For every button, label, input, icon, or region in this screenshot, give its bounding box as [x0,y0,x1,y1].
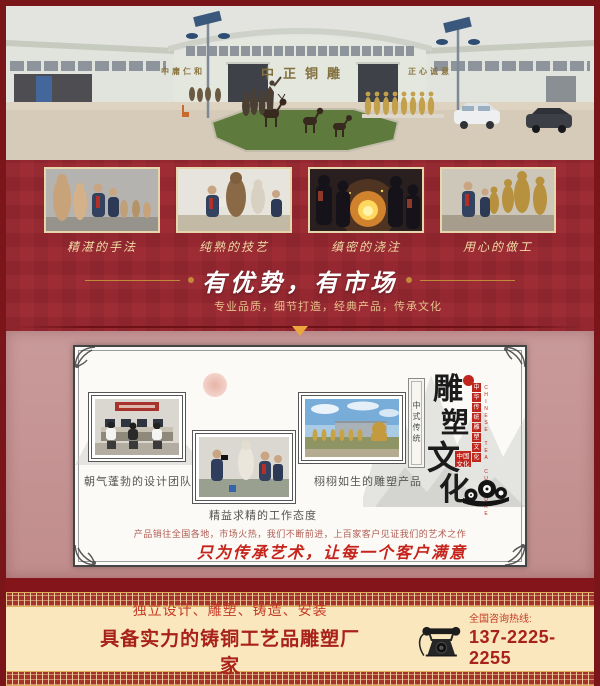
advantage-section: 精湛的手法 纯熟的技艺 [6,160,594,331]
culture-title-char: 雕 [433,375,463,405]
team-photo-frame [91,395,183,459]
culture-tablet: 中式传统 [408,378,425,468]
design-team-photo [95,399,179,455]
seal-block: 塑 [472,433,481,442]
photo-caption-attitude: 精益求精的工作态度 [203,507,323,523]
culture-card: 朝气蓬勃的设计团队 精益求精的工作态度 [73,345,527,567]
process-photo-caption: 精湛的手法 [44,238,160,255]
ink-sun [203,373,227,397]
heading-deco-dot-left [188,277,194,283]
sculpture-products-photo [305,399,399,457]
process-photo-caption: 用心的做工 [440,238,556,255]
work-attitude-photo [199,437,289,497]
hotline-label: 全国咨询热线: [469,610,594,625]
heading-deco-line-right [420,280,515,281]
process-photo-caption: 缜密的浇注 [308,238,424,255]
culture-title-char: 塑 [441,409,469,437]
seal-block: 雕 [472,423,481,432]
ink-cloud-ornament [457,477,513,509]
hotline-number[interactable]: 137-2225-2255 [469,627,594,669]
process-photo-casting: 缜密的浇注 [308,167,424,255]
slogan-calligraphy: 只为传承艺术，让每一个客户满意 [107,539,557,563]
heading-deco-dot-right [406,277,412,283]
page: 中庸仁和 中正铜雕 正心诚意 [0,0,600,686]
section-divider [16,326,584,328]
divider-arrow-icon [292,326,308,336]
advantage-title: 有优势，有市场 [202,263,398,298]
footer-company-line: 具备实力的铸铜工艺品雕塑厂家 [94,624,366,678]
culture-tablet-text: 中式传统 [411,401,422,445]
footer-text-block: 独立设计、雕塑、铸造、安装 具备实力的铸铜工艺品雕塑厂家 [94,600,366,678]
process-photo-clay-image [44,167,160,233]
attitude-photo-frame [195,433,293,501]
process-photo-casting-image [308,167,424,233]
card-corner-ornament [73,345,97,369]
photo-caption-team: 朝气蓬勃的设计团队 [83,473,193,489]
advantage-heading-row: 有优势，有市场 [6,264,594,296]
process-photo-clay: 精湛的手法 [44,167,160,255]
hotline-text: 全国咨询热线: 137-2225-2255 [469,610,594,669]
seal-block: 化 [472,453,481,462]
factory-panorama-photo: 中庸仁和 中正铜雕 正心诚意 [6,6,594,160]
products-photo-frame [301,395,403,461]
building-sign-center: 中正铜雕 [261,66,349,81]
process-photo-craft: 纯熟的技艺 [176,167,292,255]
process-photo-craft-image [176,167,292,233]
card-corner-ornament [503,345,527,369]
telephone-icon [418,619,463,659]
square-seal: 中国文化 [455,451,471,467]
seal-block: 华 [472,393,481,402]
building-sign-right: 正心诚意 [408,66,452,76]
photo-caption-products: 栩栩如生的雕塑产品 [313,473,423,489]
seal-block: 传 [472,403,481,412]
footer: 独立设计、雕塑、铸造、安装 具备实力的铸铜工艺品雕塑厂家 全国咨询热线: 137… [6,607,594,671]
process-photo-finishing: 用心的做工 [440,167,556,255]
footer-services-line: 独立设计、雕塑、铸造、安装 [94,600,366,620]
building-sign-left: 中庸仁和 [161,66,205,76]
culture-seal-column: 中 华 传 统 雕 塑 文 化 [472,383,481,463]
process-photo-caption: 纯熟的技艺 [176,238,292,255]
process-photos-row: 精湛的手法 纯熟的技艺 [6,160,594,255]
seal-block: 中 [472,383,481,392]
footer-hotline-block: 全国咨询热线: 137-2225-2255 [418,610,594,669]
heading-deco-line-left [85,280,180,281]
card-corner-ornament [73,543,97,567]
dark-red-band [6,578,594,592]
culture-panel: 朝气蓬勃的设计团队 精益求精的工作态度 [6,331,594,578]
advantage-subtitle: 专业品质，细节打造，经典产品，传承文化 [214,298,442,314]
seal-block: 统 [472,413,481,422]
process-photo-finishing-image [440,167,556,233]
seal-block: 文 [472,443,481,452]
